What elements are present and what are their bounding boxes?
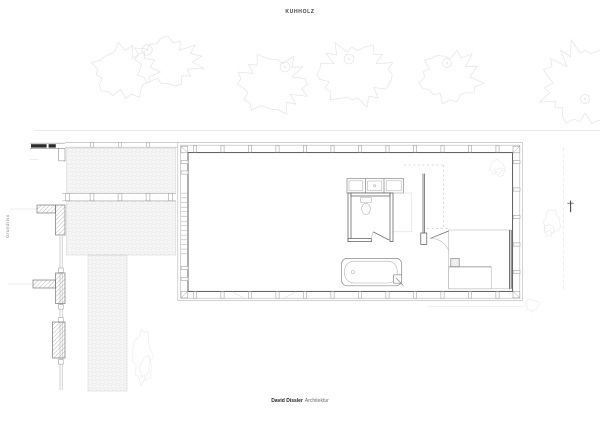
plant [489, 159, 505, 174]
garden-fence [8, 205, 65, 390]
wall-post [468, 292, 471, 299]
wall-post [331, 145, 334, 152]
wall-post [413, 145, 416, 152]
wall-post [276, 145, 279, 152]
tub-faucet [394, 275, 402, 283]
wall-post [146, 193, 150, 200]
wall-posts-top [193, 145, 499, 152]
wall-post [181, 160, 188, 163]
wall-posts-right [513, 160, 520, 273]
wall-post [66, 193, 70, 200]
wall-post [386, 145, 389, 152]
window-mullions [181, 193, 188, 254]
cabinet-outline [393, 193, 412, 232]
wall-post [513, 270, 520, 273]
kitchen-counter [347, 179, 404, 193]
wall-posts-left [181, 160, 188, 280]
masonry-pier [37, 205, 56, 213]
wall-post [303, 292, 306, 299]
wall-post [146, 142, 149, 147]
pergola-posts [90, 142, 149, 147]
wall-post [358, 145, 361, 152]
deck-back-wall [510, 230, 512, 289]
paving-terrace [67, 148, 176, 391]
wall-post [90, 193, 94, 200]
studio-suffix: Architektur [305, 398, 329, 404]
window-black-fill [49, 144, 56, 147]
masonry-pier [56, 273, 66, 304]
tree-canopy [419, 51, 484, 105]
wall-post [513, 188, 520, 191]
wall-post [513, 243, 520, 246]
tree-trunk-dot [446, 62, 448, 64]
door-swing-arc [372, 232, 374, 240]
tree-canopy [237, 54, 307, 114]
bathtub [342, 258, 404, 285]
deck-stove [451, 258, 459, 266]
wall-post [193, 292, 196, 299]
site-trees [92, 36, 600, 123]
tree-trunk-dot [584, 98, 586, 100]
flue-wall [421, 174, 427, 245]
wall-post [513, 160, 520, 163]
deck-door-swing [430, 238, 448, 250]
sliding-door-ticks [232, 292, 296, 298]
wall-post [169, 193, 173, 200]
masonry-pier [33, 280, 56, 288]
wall-posts-bottom [193, 292, 499, 299]
floor-plan [0, 0, 600, 424]
wall-post [331, 292, 334, 299]
paving-path [88, 255, 127, 391]
drawing-sheet: KUHHOLZ Grundriss [0, 0, 600, 424]
adjacent-building [30, 143, 65, 161]
masonry-pier [53, 322, 66, 358]
wall-post [441, 145, 444, 152]
toilet [361, 198, 372, 215]
deck-bench [449, 267, 492, 289]
wall-post [59, 318, 64, 323]
wall-post [193, 145, 196, 152]
walkway-posts [66, 193, 173, 200]
wall-post [496, 292, 499, 299]
deck-door-leaf [430, 231, 448, 238]
wall-post [90, 142, 93, 147]
wall-post [181, 266, 188, 269]
bathroom [348, 193, 412, 242]
tree-canopy [92, 43, 161, 99]
studio-name: David Dissler [271, 398, 303, 404]
wall-post [386, 292, 389, 299]
wall-post [59, 360, 64, 365]
wall-post [496, 145, 499, 152]
window-black-fill [31, 144, 47, 147]
wall-post [441, 292, 444, 299]
wall-post [59, 268, 64, 273]
wall-post [181, 171, 188, 174]
roof-dashed-line [404, 165, 449, 229]
wall-post [468, 145, 471, 152]
plant [525, 299, 539, 312]
wall-post [118, 193, 122, 200]
door-leaf [373, 232, 389, 240]
wall-post [276, 292, 279, 299]
wall-post [181, 277, 188, 280]
plant [543, 210, 561, 234]
wall-post [248, 145, 251, 152]
sauna-deck [430, 230, 511, 289]
wall-post [221, 292, 224, 299]
footer-credit: David DisslerArchitektur [0, 398, 600, 404]
wall-post [221, 145, 224, 152]
tree-trunk-dot [348, 58, 350, 60]
masonry-pier [56, 205, 66, 235]
tree-canopy [135, 36, 204, 86]
tree-canopy [317, 42, 393, 107]
wall-post [413, 292, 416, 299]
tree-canopy [540, 40, 600, 123]
tree-trunk-dot [146, 49, 148, 51]
survey-marker [567, 201, 573, 213]
wall-post [118, 142, 121, 147]
wall-post [303, 145, 306, 152]
wall-post [358, 292, 361, 299]
shrub [139, 355, 151, 381]
shrub [132, 330, 154, 386]
wall-post [513, 215, 520, 218]
tree-trunk-dot [284, 66, 286, 68]
wall-post [59, 305, 64, 310]
wall-post [248, 292, 251, 299]
